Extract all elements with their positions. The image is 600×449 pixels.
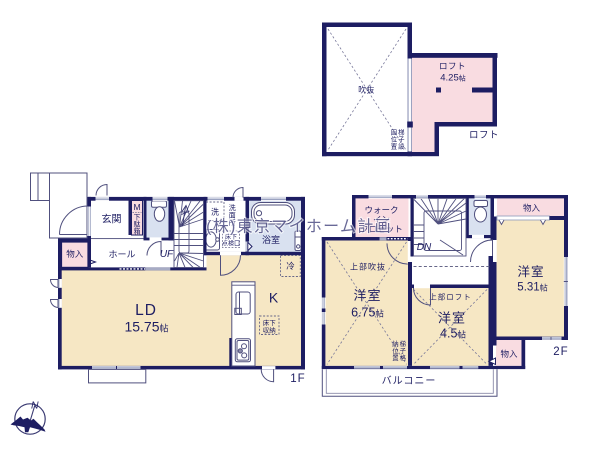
svg-text:1F: 1F	[290, 373, 305, 385]
svg-text:洗: 洗	[211, 207, 219, 217]
svg-text:上部ロフト: 上部ロフト	[429, 292, 472, 302]
svg-text:箱: 箱	[134, 227, 141, 236]
svg-text:上部吹抜: 上部吹抜	[350, 261, 386, 271]
svg-text:納: 納	[392, 339, 398, 348]
svg-text:固: 固	[391, 129, 397, 137]
svg-text:UF: UF	[160, 249, 174, 260]
svg-text:(株)東京マイホーム計画: (株)東京マイホーム計画	[206, 218, 392, 236]
svg-text:物入: 物入	[500, 349, 518, 359]
svg-text:4.5帖: 4.5帖	[440, 327, 466, 341]
svg-text:ホール: ホール	[108, 250, 135, 260]
svg-text:駄: 駄	[134, 220, 141, 229]
svg-text:床下: 床下	[263, 318, 277, 327]
svg-text:物入: 物入	[523, 203, 541, 213]
svg-text:置: 置	[392, 354, 399, 362]
svg-text:K: K	[269, 290, 279, 306]
svg-text:収納: 収納	[263, 326, 276, 335]
svg-text:下: 下	[134, 214, 141, 222]
svg-text:洋室: 洋室	[353, 288, 381, 303]
svg-text:2F: 2F	[553, 346, 568, 358]
svg-text:ロフト: ロフト	[469, 130, 499, 141]
svg-text:位: 位	[392, 346, 399, 355]
svg-text:ウォーク: ウォーク	[364, 205, 398, 215]
svg-text:6.75帖: 6.75帖	[351, 306, 384, 320]
svg-text:LD: LD	[135, 302, 157, 319]
svg-text:5.31帖: 5.31帖	[517, 282, 547, 294]
svg-text:ロフト: ロフト	[439, 61, 466, 71]
svg-text:子: 子	[398, 136, 405, 144]
svg-text:点検口: 点検口	[222, 240, 240, 248]
svg-text:設: 設	[398, 142, 405, 151]
svg-text:梯: 梯	[398, 128, 405, 137]
svg-text:物入: 物入	[66, 249, 84, 259]
svg-text:DN: DN	[417, 242, 432, 253]
svg-text:玄関: 玄関	[102, 213, 122, 226]
svg-text:バルコニー: バルコニー	[382, 375, 437, 387]
svg-text:冷: 冷	[286, 261, 295, 271]
svg-text:位: 位	[391, 135, 398, 144]
svg-text:吹抜: 吹抜	[358, 85, 375, 95]
svg-text:N: N	[31, 400, 39, 412]
svg-text:子: 子	[400, 347, 407, 355]
svg-text:置: 置	[391, 143, 398, 151]
svg-text:M: M	[133, 202, 140, 212]
svg-text:格: 格	[400, 353, 407, 362]
svg-text:洋室: 洋室	[517, 264, 544, 279]
svg-text:洋室: 洋室	[438, 311, 466, 326]
svg-text:梯: 梯	[400, 339, 407, 348]
svg-text:洗: 洗	[229, 203, 236, 212]
